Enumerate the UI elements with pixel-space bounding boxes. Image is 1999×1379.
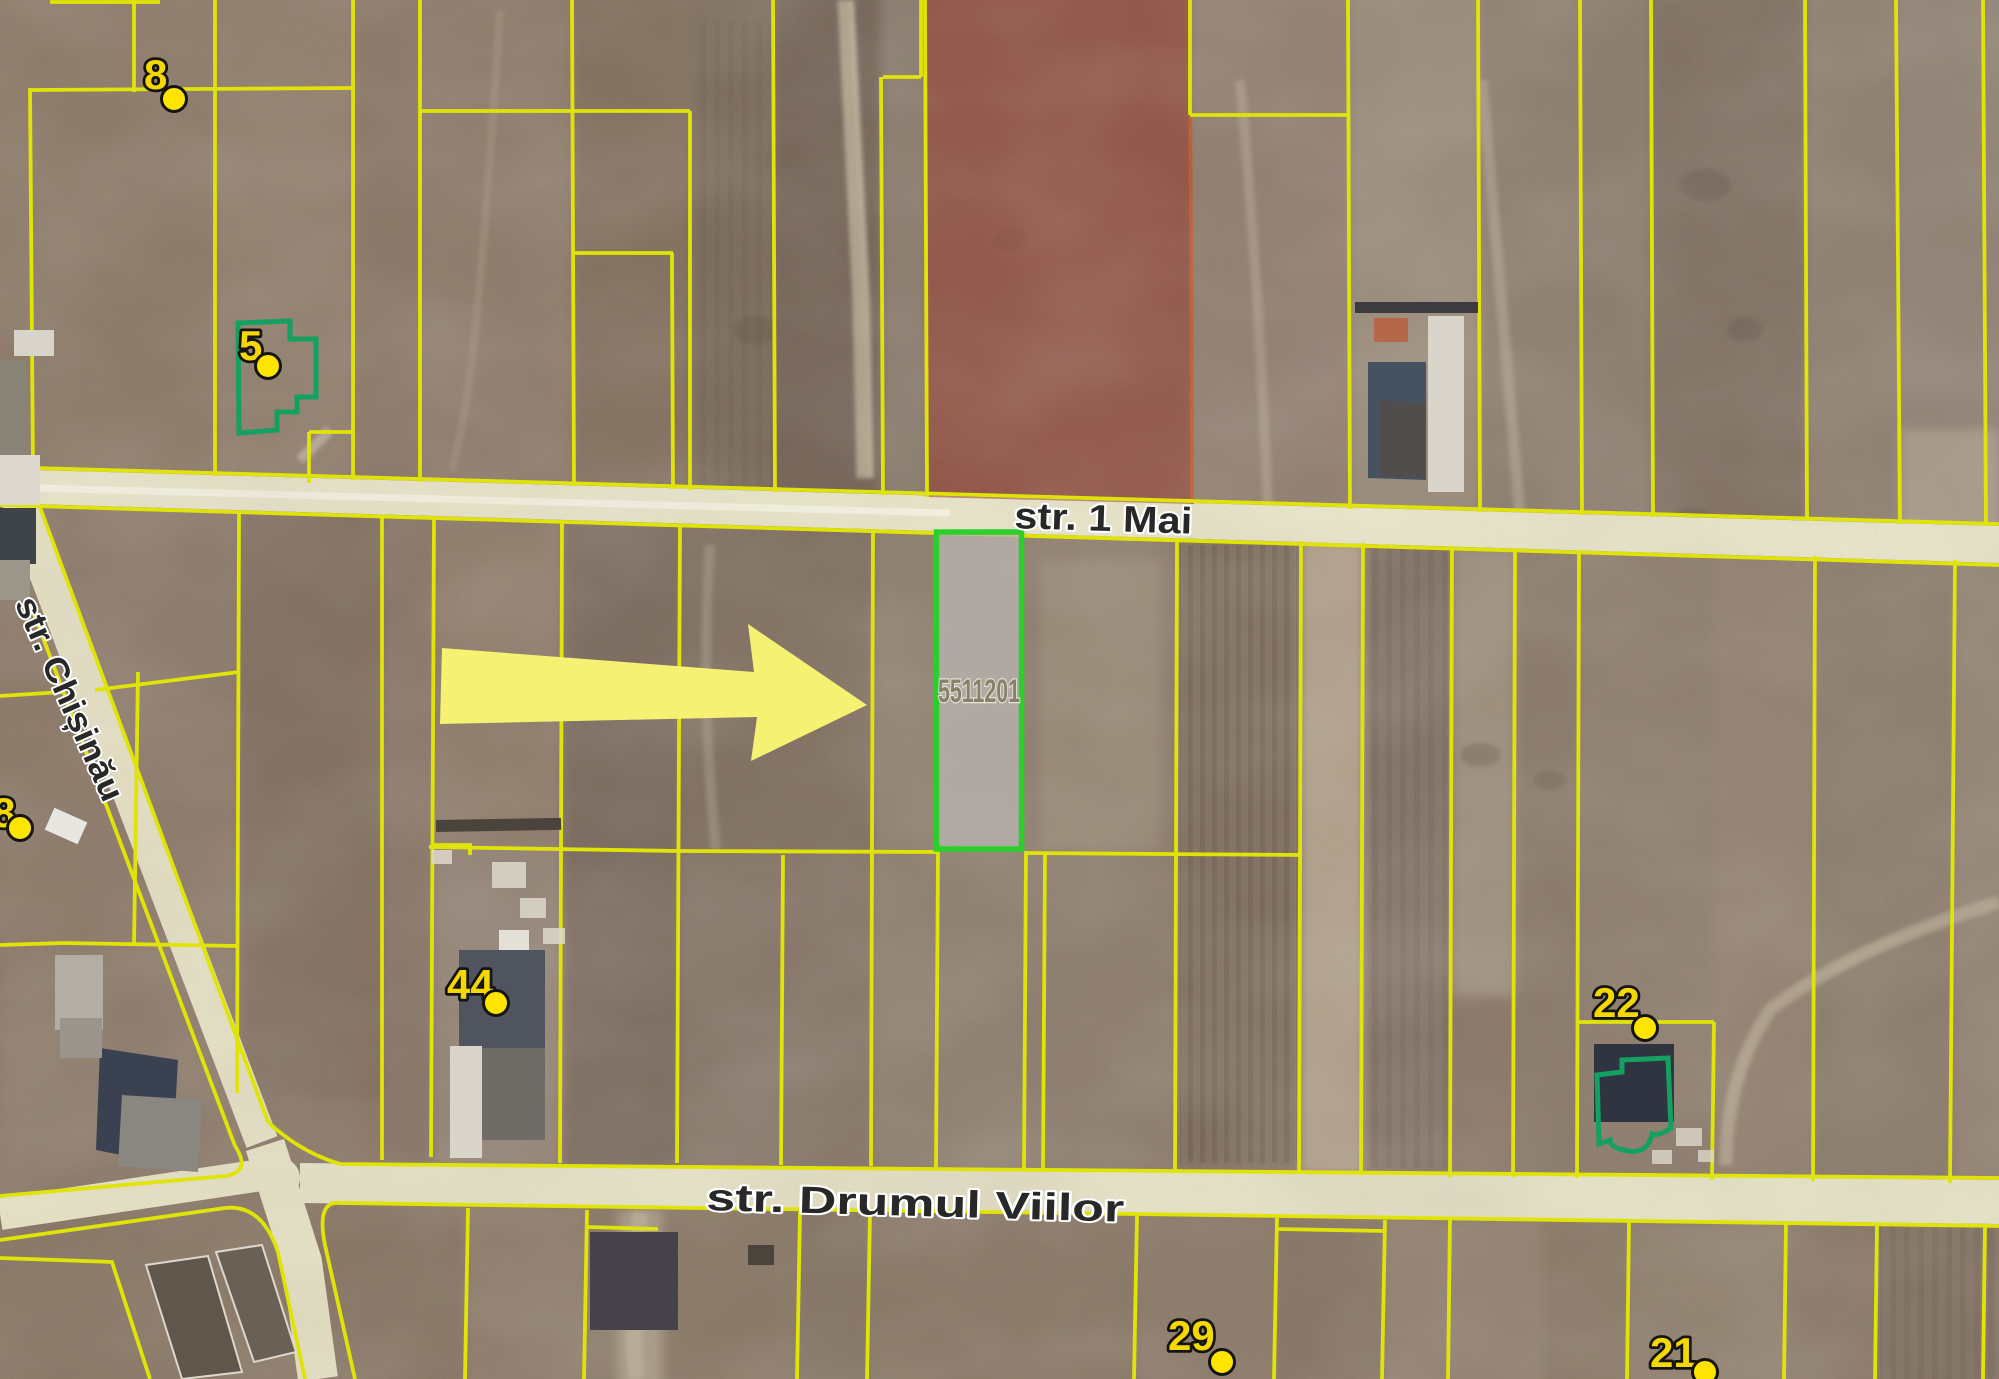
svg-text:21: 21 bbox=[1650, 1329, 1697, 1376]
svg-text:str. 1 Mai: str. 1 Mai bbox=[1014, 495, 1193, 542]
svg-text:22: 22 bbox=[1593, 979, 1640, 1026]
svg-text:5511201: 5511201 bbox=[938, 673, 1020, 709]
svg-text:29: 29 bbox=[1168, 1312, 1215, 1359]
